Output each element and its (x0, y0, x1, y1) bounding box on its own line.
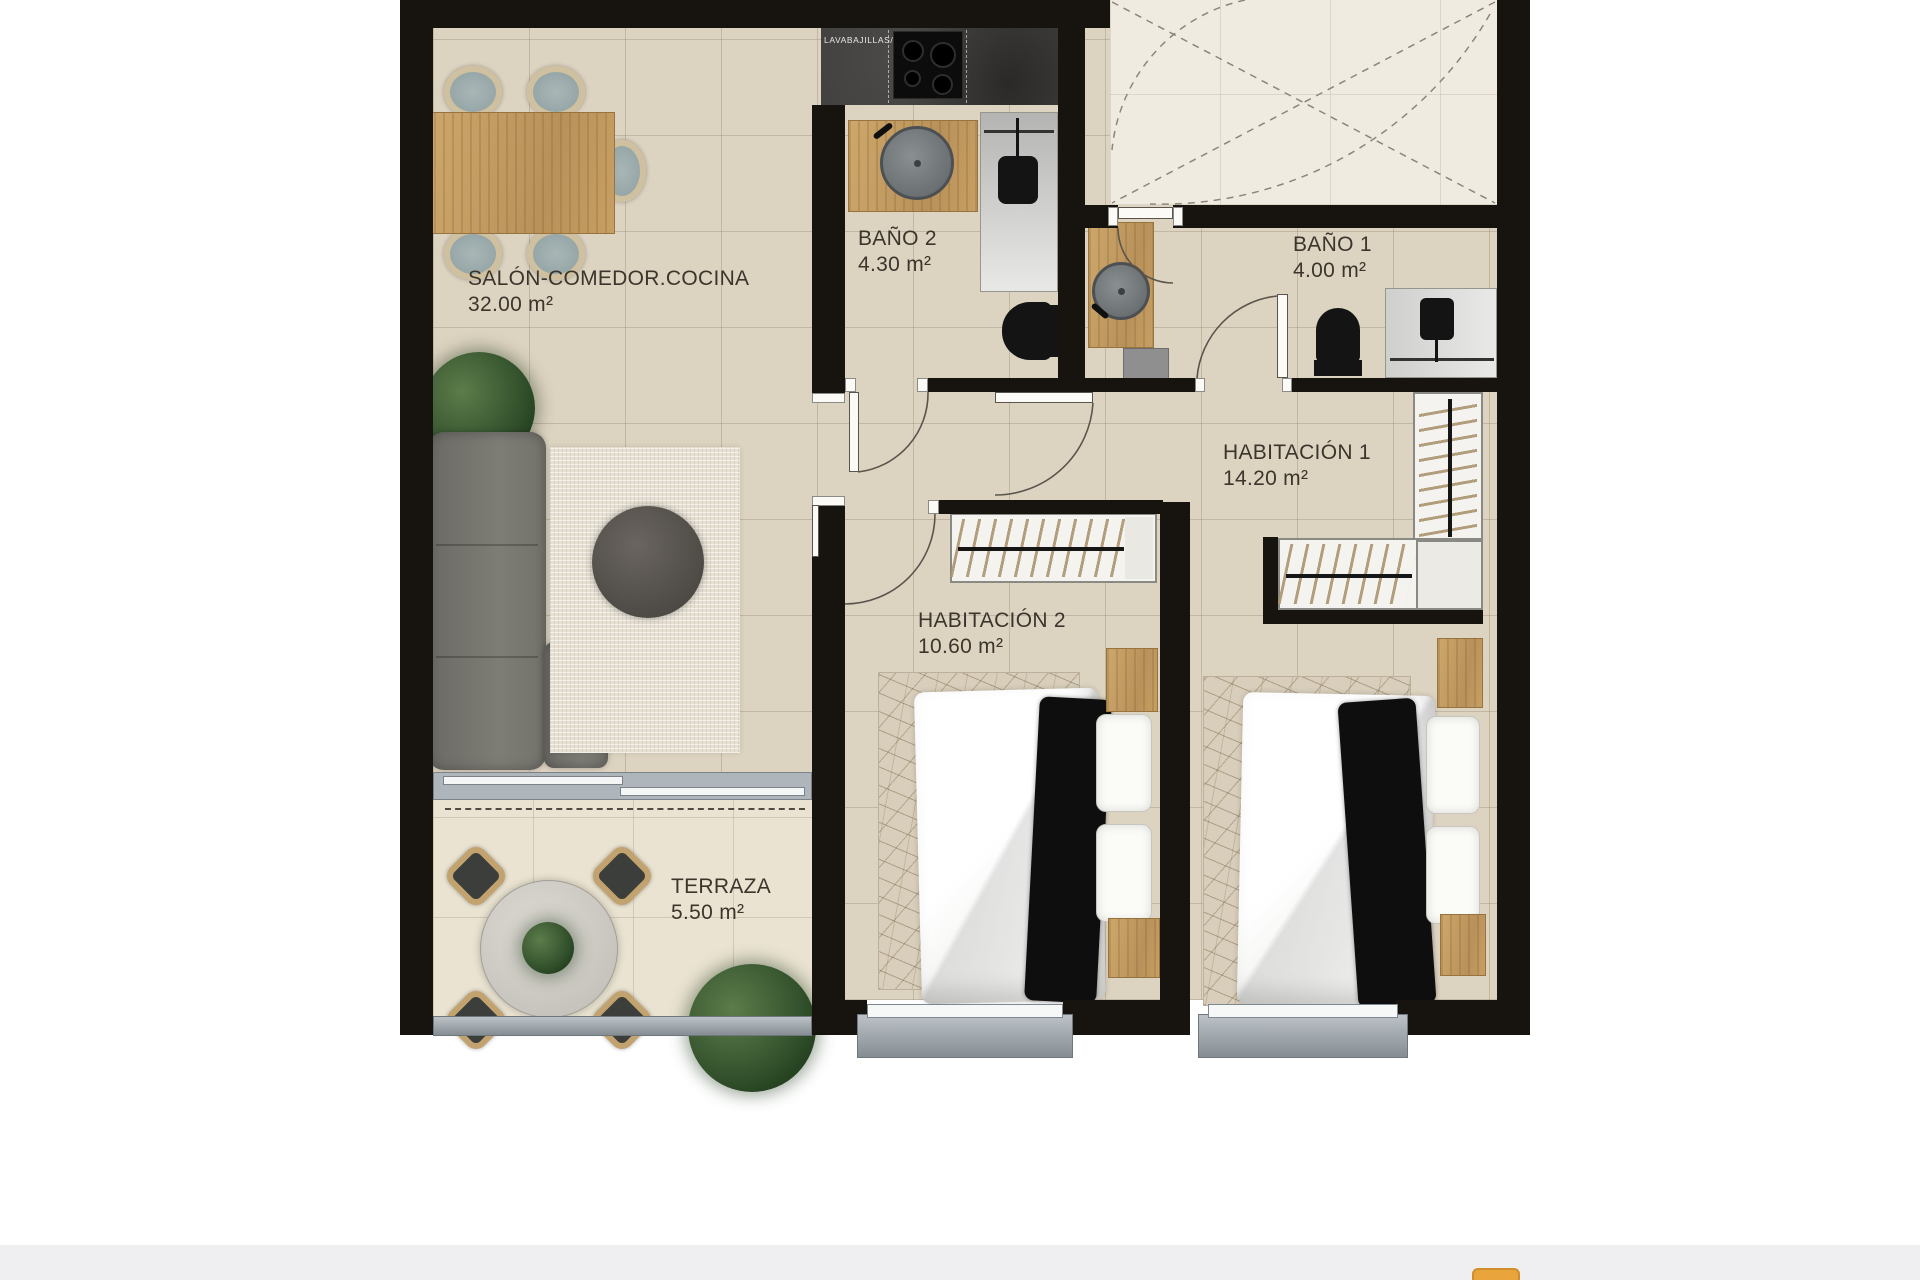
room-area: 14.20 m² (1223, 466, 1371, 492)
room-name: BAÑO 1 (1293, 232, 1372, 258)
entrance-door-arc (1118, 228, 1173, 283)
room-name: BAÑO 2 (858, 226, 937, 252)
room-label-bano2: BAÑO 2 4.30 m² (858, 226, 937, 278)
bathroom1-door-arc (1197, 296, 1277, 378)
stairwell-arc (1112, 0, 1245, 150)
room-name: TERRAZA (671, 874, 771, 900)
floor-plan-page: LAVABAJILLAS/ (0, 0, 1920, 1280)
stairwell-arc (1150, 14, 1490, 204)
room-area: 4.00 m² (1293, 258, 1372, 284)
logo-fragment (1472, 1268, 1520, 1280)
room-name: HABITACIÓN 2 (918, 608, 1066, 634)
corridor-door-arc (995, 403, 1093, 495)
bedroom2-door-arc (845, 514, 935, 604)
room-label-habitacion2: HABITACIÓN 2 10.60 m² (918, 608, 1066, 660)
room-label-terraza: TERRAZA 5.50 m² (671, 874, 771, 926)
room-name: HABITACIÓN 1 (1223, 440, 1371, 466)
room-area: 32.00 m² (468, 292, 749, 318)
room-label-habitacion1: HABITACIÓN 1 14.20 m² (1223, 440, 1371, 492)
room-label-salon: SALÓN-COMEDOR.COCINA 32.00 m² (468, 266, 749, 318)
room-label-bano1: BAÑO 1 4.00 m² (1293, 232, 1372, 284)
room-area: 4.30 m² (858, 252, 937, 278)
room-area: 5.50 m² (671, 900, 771, 926)
bathroom2-door-arc (858, 392, 928, 472)
room-name: SALÓN-COMEDOR.COCINA (468, 266, 749, 292)
room-area: 10.60 m² (918, 634, 1066, 660)
footer-band (0, 1245, 1920, 1280)
